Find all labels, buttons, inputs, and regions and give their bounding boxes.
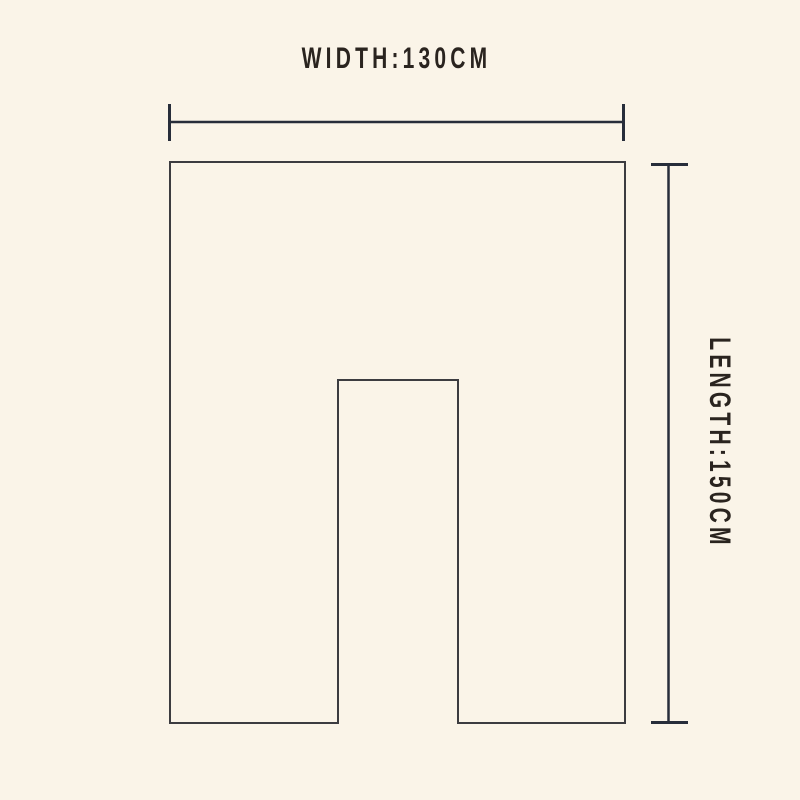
length-dimension-line: [651, 165, 688, 723]
garment-outline-shape: [170, 162, 625, 723]
dimension-diagram: WIDTH:130CM LENGTH:150CM: [0, 0, 800, 800]
diagram-linework: [0, 0, 800, 800]
length-dimension-text: LENGTH:150CM: [704, 337, 734, 548]
width-dimension-line: [169, 104, 624, 141]
